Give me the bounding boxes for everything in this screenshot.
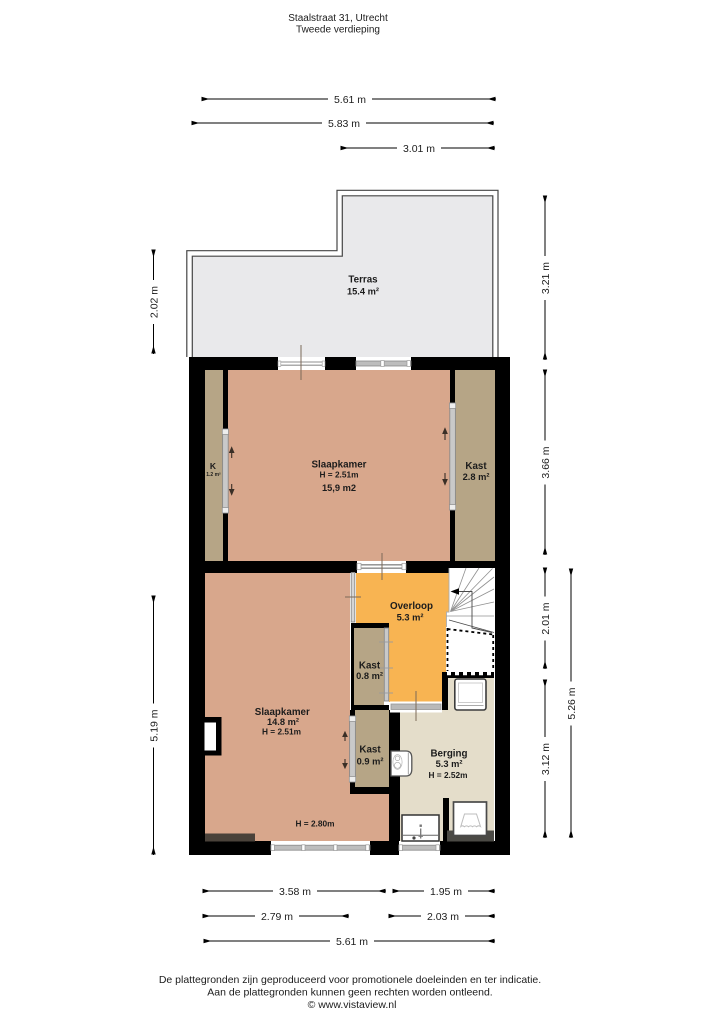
- svg-text:H = 2.51m: H = 2.51m: [262, 727, 301, 737]
- svg-text:3.21 m: 3.21 m: [540, 262, 552, 294]
- svg-text:5.19 m: 5.19 m: [149, 709, 161, 741]
- svg-text:De plattegronden zijn geproduc: De plattegronden zijn geproduceerd voor …: [159, 974, 541, 986]
- svg-text:Overloop: Overloop: [390, 601, 433, 612]
- svg-text:2.03 m: 2.03 m: [427, 911, 459, 923]
- svg-text:Kast: Kast: [465, 461, 487, 472]
- svg-text:2.01 m: 2.01 m: [540, 602, 552, 634]
- svg-text:3.01 m: 3.01 m: [403, 143, 435, 155]
- svg-text:3.58 m: 3.58 m: [279, 886, 311, 898]
- svg-text:1.95 m: 1.95 m: [430, 886, 462, 898]
- svg-text:5.61 m: 5.61 m: [334, 94, 366, 106]
- svg-text:14.8 m²: 14.8 m²: [267, 717, 299, 727]
- svg-text:H = 2.52m: H = 2.52m: [429, 770, 468, 780]
- svg-text:2.02 m: 2.02 m: [149, 286, 161, 318]
- svg-text:2.8 m²: 2.8 m²: [463, 472, 490, 482]
- svg-text:Tweede verdieping: Tweede verdieping: [296, 25, 380, 36]
- svg-text:15,9 m2: 15,9 m2: [322, 483, 356, 493]
- svg-text:H = 2.51m: H = 2.51m: [320, 470, 359, 480]
- svg-text:Kast: Kast: [359, 745, 381, 756]
- svg-text:1.2 m²: 1.2 m²: [206, 472, 221, 478]
- svg-text:5.3 m²: 5.3 m²: [436, 759, 463, 769]
- svg-text:© www.vistaview.nl: © www.vistaview.nl: [308, 999, 397, 1011]
- svg-text:3.66 m: 3.66 m: [540, 446, 552, 478]
- svg-text:Kast: Kast: [359, 661, 381, 672]
- svg-text:2.79 m: 2.79 m: [261, 911, 293, 923]
- svg-text:H = 2.80m: H = 2.80m: [296, 819, 335, 829]
- svg-text:5.3 m²: 5.3 m²: [397, 613, 424, 623]
- svg-text:5.83 m: 5.83 m: [328, 118, 360, 130]
- svg-text:0.9 m²: 0.9 m²: [357, 757, 384, 767]
- svg-text:15.4 m²: 15.4 m²: [347, 287, 379, 297]
- svg-text:Aan de plattegronden kunnen ge: Aan de plattegronden kunnen geen rechten…: [207, 987, 492, 999]
- svg-text:Staalstraat 31, Utrecht: Staalstraat 31, Utrecht: [288, 13, 388, 24]
- svg-text:5.61 m: 5.61 m: [336, 936, 368, 948]
- svg-text:K: K: [210, 461, 217, 471]
- svg-text:Terras: Terras: [348, 275, 378, 286]
- svg-text:0.8 m²: 0.8 m²: [356, 671, 383, 681]
- svg-text:Berging: Berging: [430, 749, 467, 760]
- svg-text:5.26 m: 5.26 m: [566, 687, 578, 719]
- svg-text:3.12 m: 3.12 m: [540, 743, 552, 775]
